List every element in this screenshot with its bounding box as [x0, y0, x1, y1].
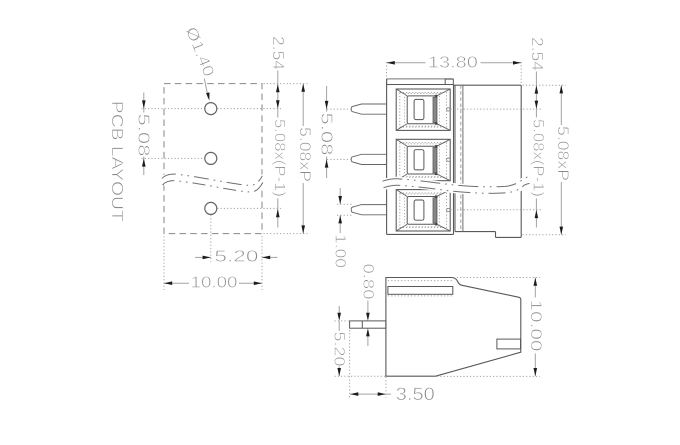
svg-text:2.54: 2.54: [528, 37, 545, 71]
svg-text:5.08: 5.08: [317, 113, 334, 156]
svg-text:10.00: 10.00: [191, 275, 238, 292]
svg-text:5.08: 5.08: [134, 114, 151, 157]
svg-text:5.08xP: 5.08xP: [554, 126, 571, 181]
svg-text:5.08x(P-1): 5.08x(P-1): [271, 119, 288, 197]
svg-text:Ø1.40: Ø1.40: [182, 25, 217, 80]
svg-text:5.08xP: 5.08xP: [296, 127, 313, 182]
svg-text:PCB LAYOUT: PCB LAYOUT: [108, 101, 125, 222]
svg-text:2.54: 2.54: [269, 36, 286, 70]
svg-text:5.08x(P-1): 5.08x(P-1): [530, 119, 547, 197]
svg-text:5.20: 5.20: [331, 332, 348, 367]
svg-text:3.50: 3.50: [396, 384, 435, 404]
svg-text:0.80: 0.80: [359, 264, 376, 300]
svg-text:1.00: 1.00: [332, 234, 349, 268]
svg-text:10.00: 10.00: [527, 300, 544, 352]
svg-text:13.80: 13.80: [428, 54, 478, 71]
svg-text:5.20: 5.20: [214, 249, 258, 266]
